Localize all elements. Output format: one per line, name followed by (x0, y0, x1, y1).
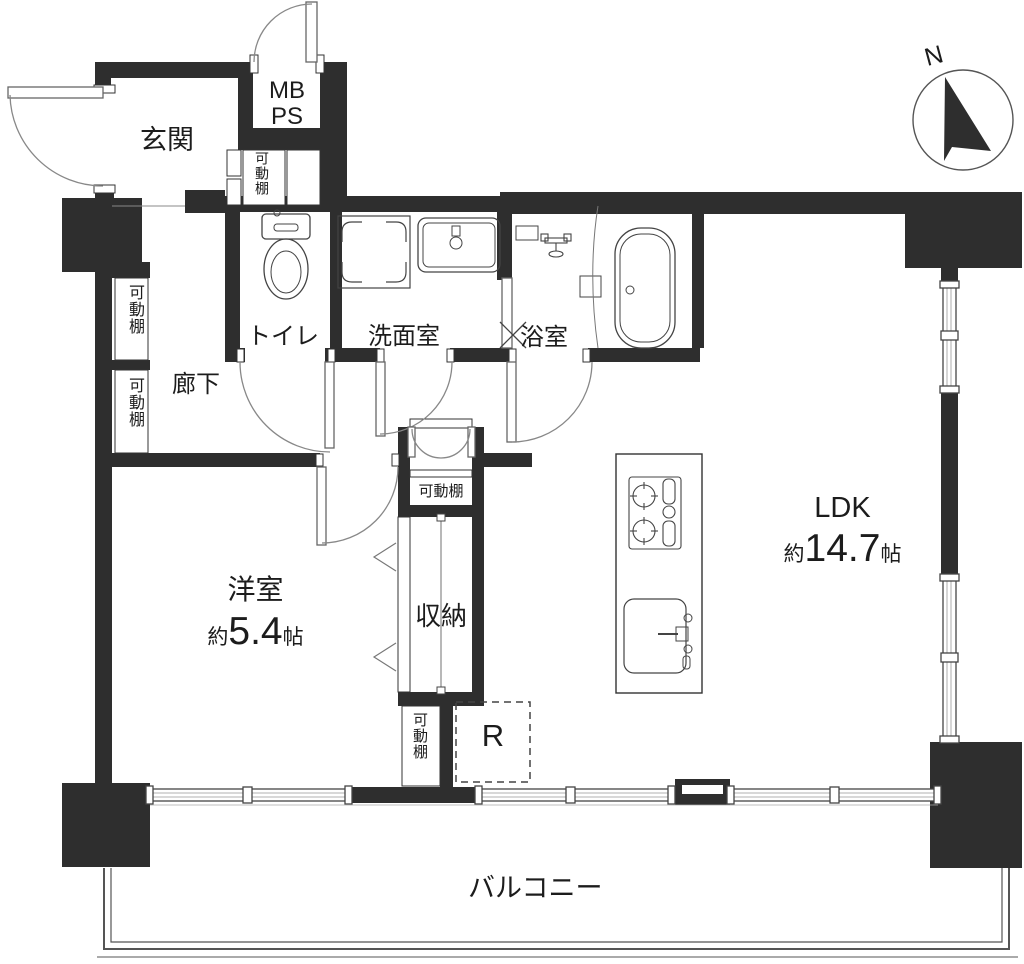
label-ps: PS (252, 104, 322, 130)
window-east-2 (940, 574, 959, 743)
entrance-door (8, 87, 103, 186)
western-size-unit: 帖 (283, 626, 304, 649)
toilet-door (240, 362, 334, 452)
label-mb: MB (252, 78, 322, 104)
wall-window-inset (682, 785, 723, 794)
toilet-icon (262, 210, 310, 299)
label-shelf-entrance: 可動棚 (252, 151, 272, 196)
window-south-2 (475, 786, 675, 804)
western-size-value: 5.4 (228, 610, 282, 653)
shower-icon (541, 234, 571, 257)
bathtub-icon (615, 228, 675, 348)
floor-plan: 玄関 MB PS 可動棚 可動棚 可動棚 トイレ 洗面室 浴室 廊下 可動棚 収… (0, 0, 1024, 964)
label-shelf-storage-top: 可動棚 (407, 480, 475, 501)
ldk-size: 約14.7帖 (745, 527, 940, 571)
label-storage: 収納 (407, 596, 475, 633)
window-south-1 (146, 786, 352, 804)
label-bathroom: 浴室 (520, 317, 568, 352)
western-room-name: 洋室 (158, 568, 353, 608)
mbps-door (254, 2, 317, 62)
label-refrigerator: R (458, 718, 528, 754)
western-room-size: 約5.4帖 (158, 610, 353, 654)
storage-cabinet-doors (408, 427, 475, 458)
label-balcony: バルコニー (468, 866, 602, 905)
western-room-door (317, 467, 398, 545)
walls (62, 62, 1022, 868)
label-toilet: トイレ (247, 316, 319, 351)
window-east-1 (940, 281, 959, 393)
ldk-size-prefix: 約 (784, 543, 805, 566)
label-hallway: 廊下 (172, 364, 220, 399)
label-shelf-hall-1: 可動棚 (122, 284, 146, 335)
ldk-door (507, 362, 592, 442)
label-shelf-hall-2: 可動棚 (122, 377, 146, 428)
compass-icon (913, 70, 1013, 170)
window-south-3 (727, 786, 941, 804)
label-washroom: 洗面室 (368, 316, 440, 351)
ldk-name: LDK (745, 492, 940, 525)
western-size-prefix: 約 (207, 626, 228, 649)
label-genkan: 玄関 (140, 118, 194, 157)
ldk-size-unit: 帖 (880, 543, 901, 566)
label-ldk: LDK 約14.7帖 (745, 492, 940, 571)
label-western-room: 洋室 約5.4帖 (158, 568, 353, 654)
label-shelf-bottom: 可動棚 (409, 712, 430, 760)
shelf-boxes (115, 150, 440, 786)
ldk-size-value: 14.7 (805, 527, 881, 570)
washer-pan-icon (338, 216, 410, 288)
label-mb-ps: MB PS (252, 78, 322, 131)
vanity-sink-icon (418, 218, 500, 272)
